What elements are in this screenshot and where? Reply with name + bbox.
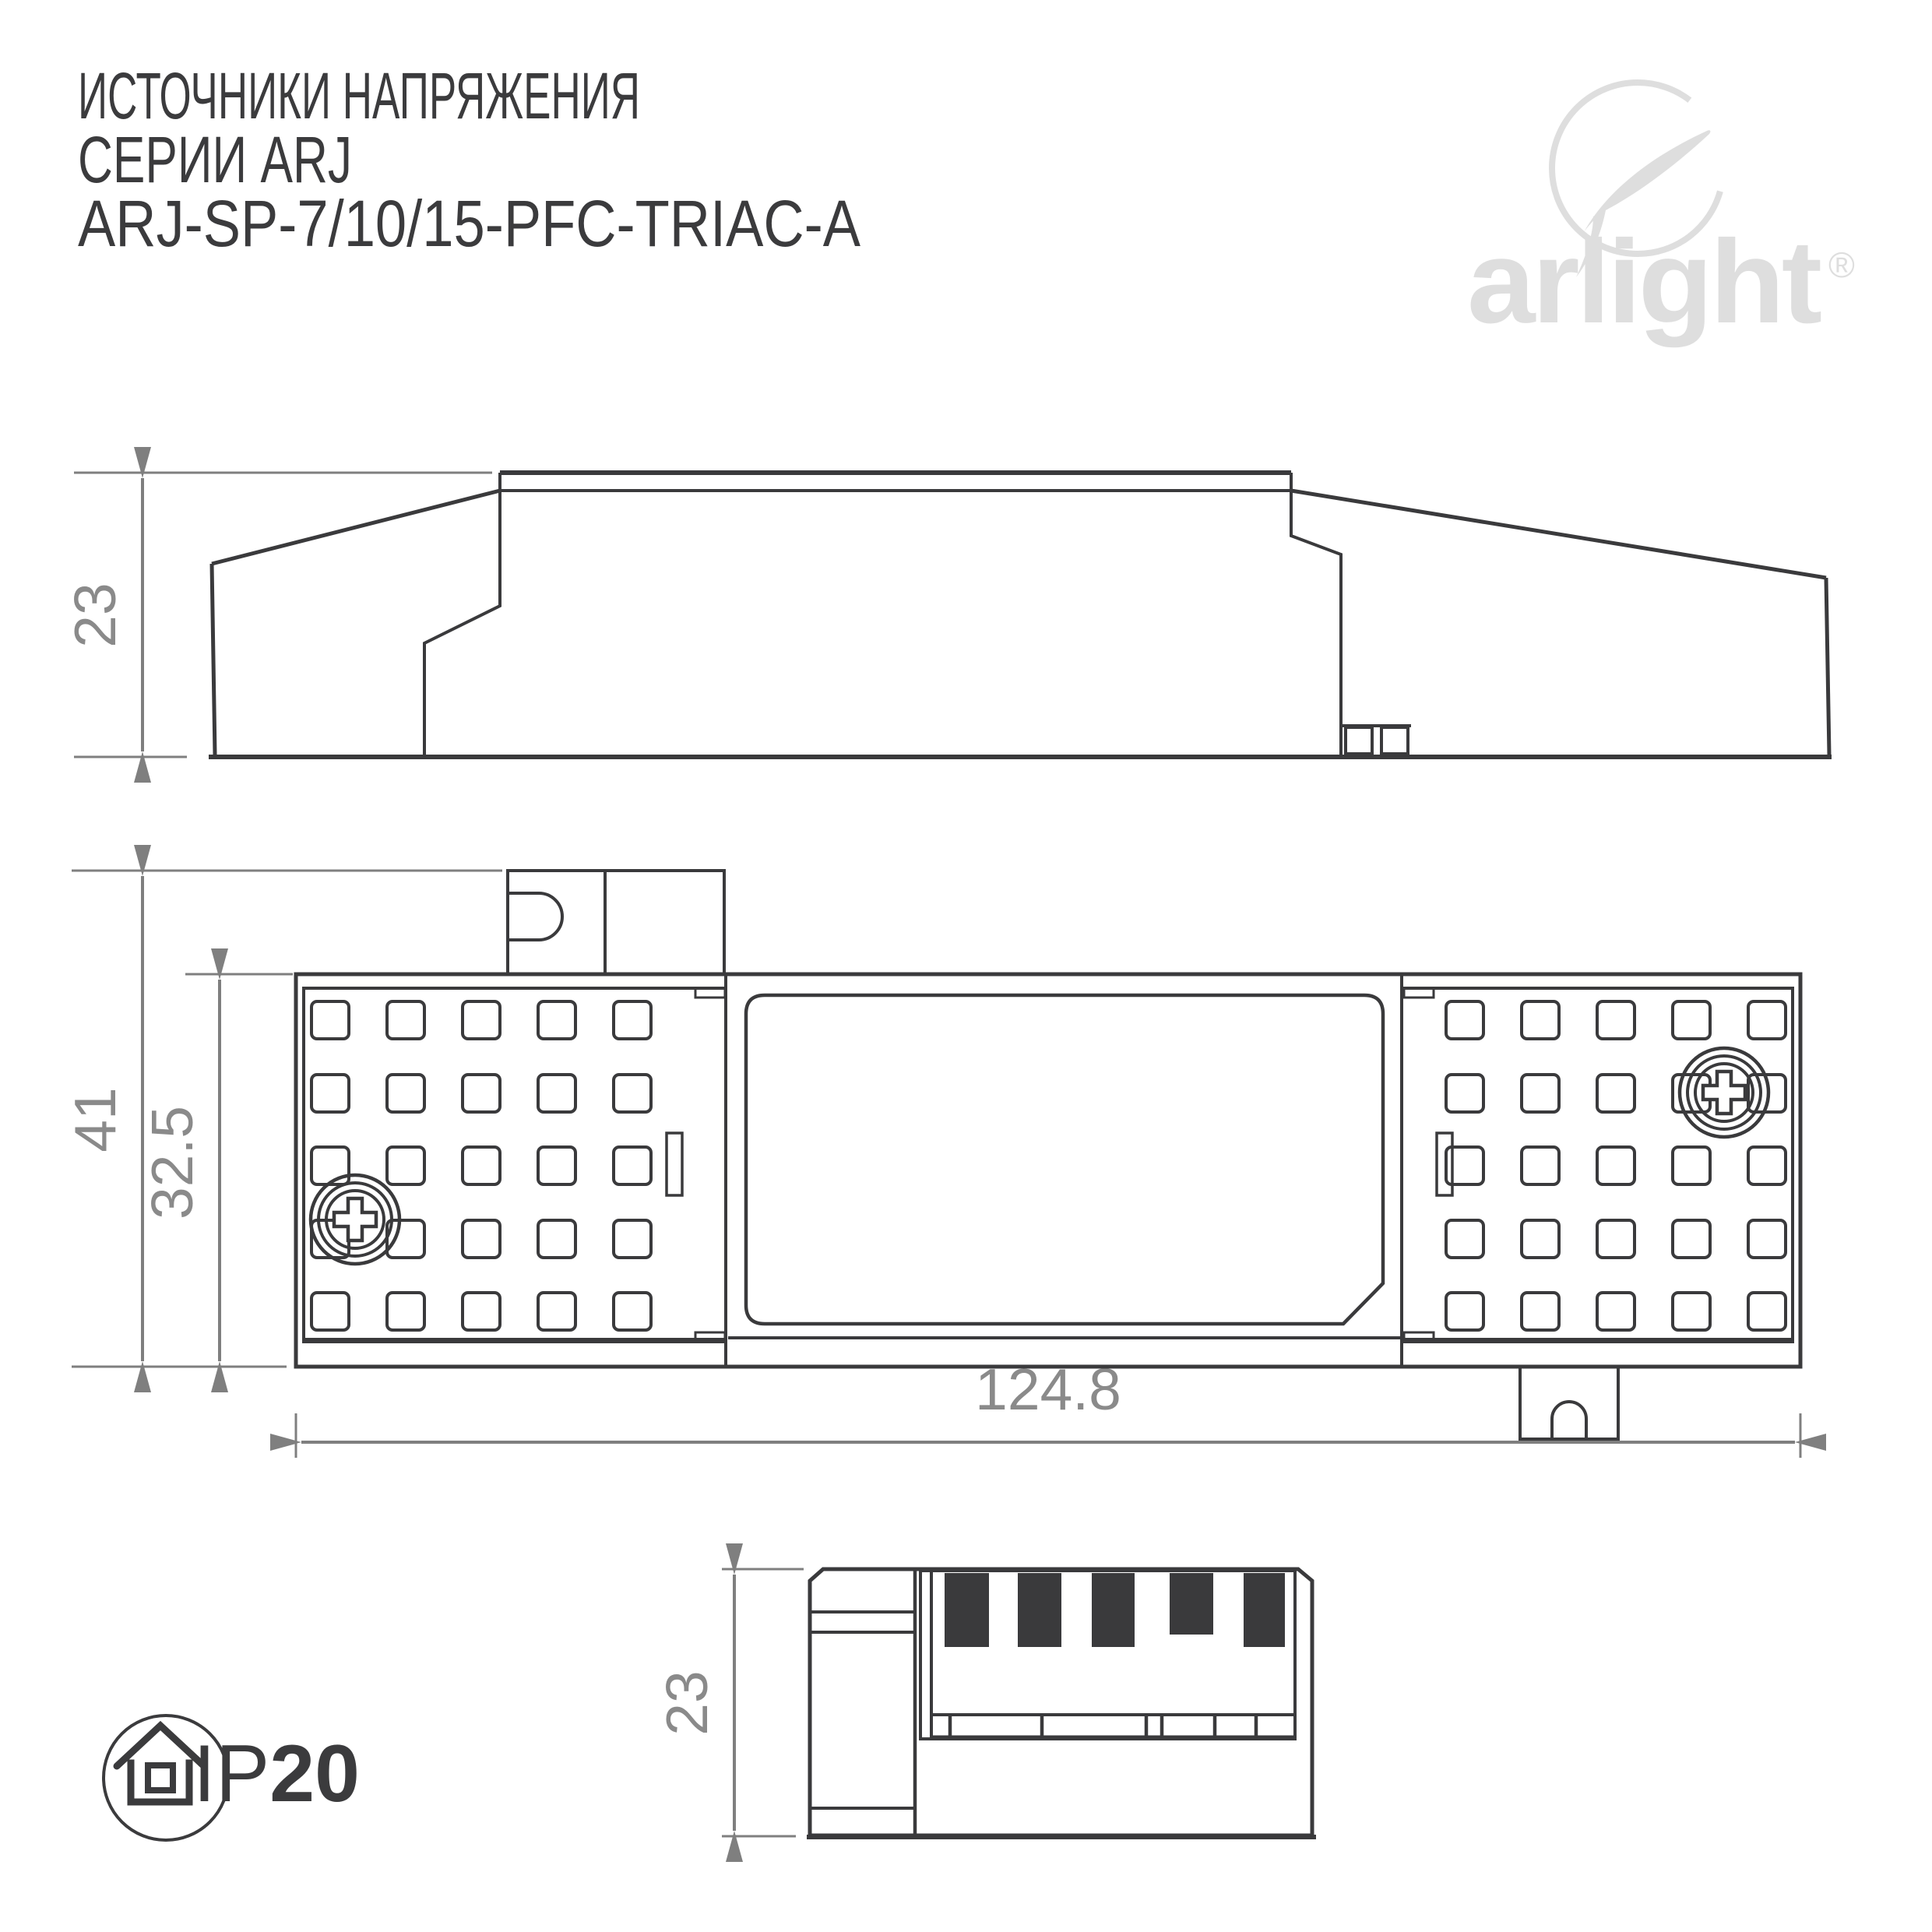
ip-value: 20: [269, 1729, 360, 1819]
title-line-1: ИСТОЧНИКИ НАПРЯЖЕНИЯ: [78, 59, 640, 132]
terminal-contact: [1244, 1573, 1285, 1647]
terminal-contact: [1170, 1573, 1213, 1635]
top-outer-height-label: 41: [62, 1087, 128, 1152]
title-line-2: СЕРИИ ARJ: [78, 123, 352, 196]
terminal-contact: [1018, 1573, 1061, 1647]
top-inner-height-label: 32.5: [139, 1106, 205, 1219]
technical-drawing: ИСТОЧНИКИ НАПРЯЖЕНИЯ СЕРИИ ARJ ARJ-SP-7/…: [0, 0, 1932, 1932]
ip-prefix: IP: [193, 1729, 269, 1819]
terminal-contact: [1092, 1573, 1135, 1647]
datasheet-page: ИСТОЧНИКИ НАПРЯЖЕНИЯ СЕРИИ ARJ ARJ-SP-7/…: [0, 0, 1932, 1932]
registered-mark: ®: [1828, 245, 1855, 285]
end-height-label: 23: [654, 1670, 720, 1735]
side-height-label: 23: [62, 582, 128, 647]
title-line-3: ARJ-SP-7/10/15-PFC-TRIAC-A: [78, 187, 860, 260]
ip-rating: IP20: [193, 1729, 360, 1819]
terminal-contact: [945, 1573, 989, 1647]
arlight-logo-text: arlight: [1467, 216, 1821, 348]
